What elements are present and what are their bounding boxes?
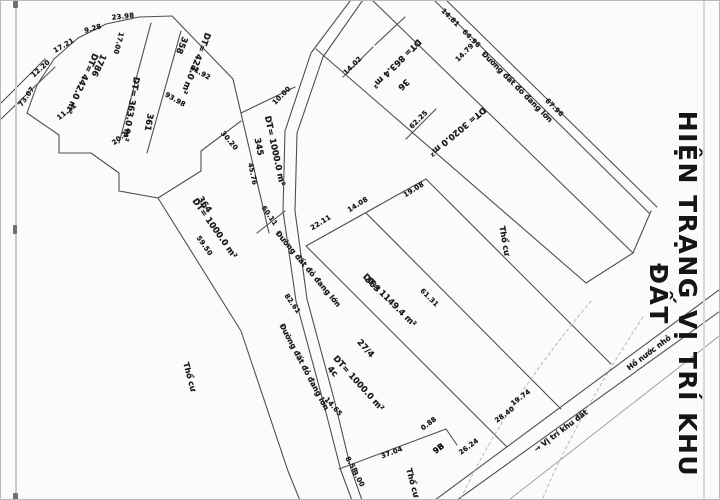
scan-smudge (13, 225, 17, 234)
scan-smudge (13, 1, 18, 8)
map-title: HIỆN TRẠNG VỊ TRÍ KHU ĐẤT (644, 84, 702, 500)
map-linework (1, 1, 720, 500)
parcel-area-label: 361 (142, 113, 153, 132)
scan-edge-right (703, 1, 705, 500)
cadastral-map-scan: DT= 442.0 m²1786DT= 363.0 m²361DT= 423.0… (0, 0, 720, 500)
scan-edge-left (15, 1, 17, 500)
scan-smudge (13, 493, 18, 500)
